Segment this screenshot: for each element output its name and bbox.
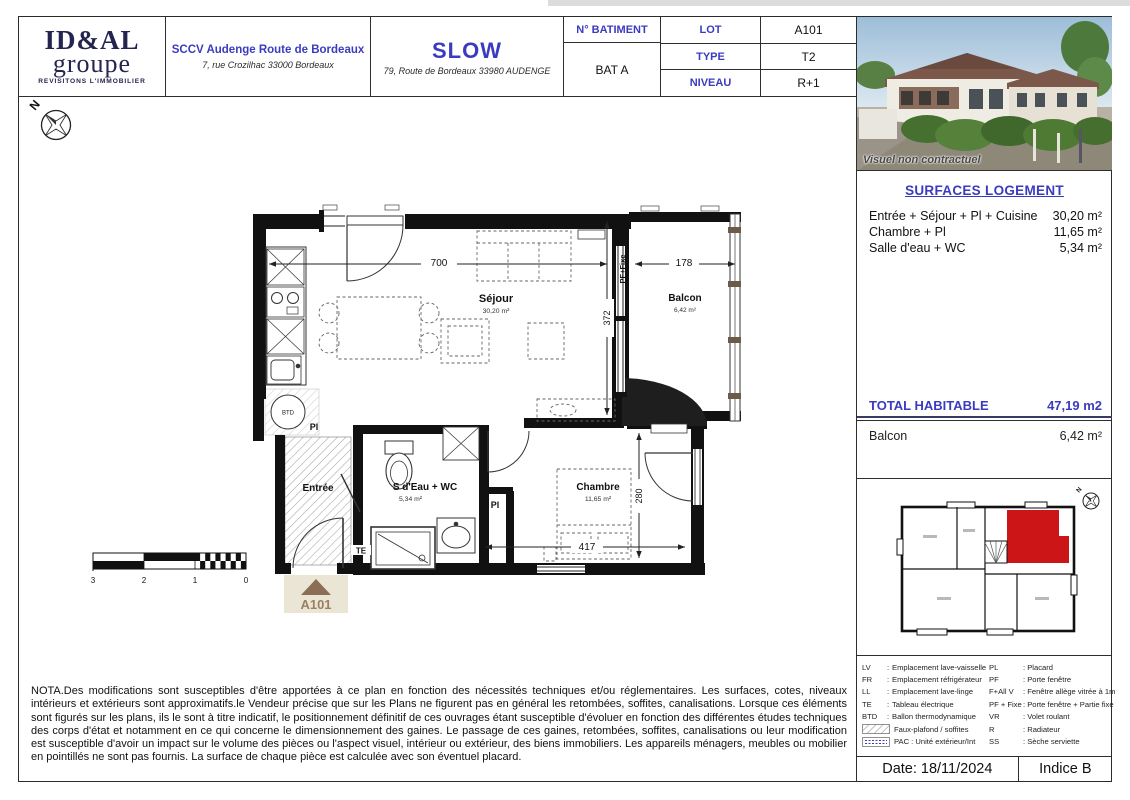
floor-plan-drawing: N [19, 96, 856, 686]
surface-row: Entrée + Séjour + Pl + Cuisine 30,20 m² [869, 208, 1102, 224]
entree-hatched-floor [285, 437, 351, 565]
svg-text:178: 178 [676, 258, 693, 269]
surface-row: Salle d'eau + WC 5,34 m² [869, 240, 1102, 256]
legend-separator: : [884, 700, 892, 709]
legend-text: Emplacement réfrigérateur [892, 675, 982, 684]
legend-row: PAC : Unité extérieur/Int [862, 735, 984, 747]
legend-abbr: PF [989, 675, 1023, 684]
project-cell: SLOW 79, Route de Bordeaux 33980 AUDENGE [371, 17, 564, 96]
legend-text: : Placard [1023, 663, 1053, 672]
placard-label-1: Pl [310, 422, 319, 432]
lot-entrance-marker: A101 [284, 575, 348, 613]
type-value: T2 [761, 44, 856, 71]
balcon-section: Balcon 6,42 m² [857, 421, 1112, 479]
chambre-doors [488, 431, 702, 505]
key-plan-illustration: N [857, 479, 1112, 656]
pac-unit-icon [862, 737, 890, 747]
legend-abbr: SS [989, 737, 1023, 746]
key-plan-section: N [857, 479, 1112, 656]
legend-row: R: Radiateur [989, 723, 1115, 735]
legend-abbr: BTD [862, 712, 884, 721]
svg-text:417: 417 [579, 542, 596, 553]
radiator-chambre [651, 424, 687, 433]
indice-value: Indice B [1019, 757, 1112, 781]
room-label-entree: Entrée [302, 483, 334, 494]
legend-row: LL:Emplacement lave-linge [862, 686, 984, 698]
keyplan-compass-icon: N [1075, 486, 1099, 509]
legend-text: : Volet roulant [1023, 712, 1069, 721]
lot-type-niveau-labels: LOT TYPE NIVEAU [661, 17, 761, 96]
surfaces-title: SURFACES LOGEMENT [857, 183, 1112, 198]
placard-label-2: Pl [491, 500, 500, 510]
legend-text: : Fenêtre allège vitrée à 1m [1023, 687, 1115, 696]
svg-text:280: 280 [634, 488, 644, 503]
legend-row: TE:Tableau électrique [862, 698, 984, 710]
document-frame: ID&AL groupe REVISITONS L'IMMOBILIER SCC… [18, 16, 1112, 782]
legend-abbr: LL [862, 687, 884, 696]
legend-text: Emplacement lave-linge [892, 687, 973, 696]
legend-abbr: PF + Fixe [989, 700, 1023, 709]
logo-tagline: REVISITONS L'IMMOBILIER [38, 78, 146, 85]
legend-text: PAC : Unité extérieur/Int [894, 737, 975, 746]
legend-row: LV:Emplacement lave-vaisselle [862, 661, 984, 673]
room-area-balcon: 6,42 m² [674, 307, 697, 314]
scale-bar: 3 2 1 0 [91, 553, 249, 585]
floor-plan-document: ID&AL groupe REVISITONS L'IMMOBILIER SCC… [0, 0, 1130, 800]
project-address: 79, Route de Bordeaux 33980 AUDENGE [384, 66, 551, 76]
niveau-label: NIVEAU [661, 70, 760, 96]
surfaces-table: Entrée + Séjour + Pl + Cuisine 30,20 m² … [869, 208, 1102, 256]
lot-value: A101 [761, 17, 856, 44]
te-label: TE [356, 547, 367, 556]
legend-text: : Porte fenêtre [1023, 675, 1071, 684]
svg-text:0: 0 [244, 576, 249, 585]
room-label-sejour: Séjour [479, 293, 514, 305]
legend-row: F+All V: Fenêtre allège vitrée à 1m [989, 686, 1115, 698]
total-label: TOTAL HABITABLE [869, 398, 989, 413]
legend-text: Emplacement lave-vaisselle [892, 663, 986, 672]
legend-text: Ballon thermodynamique [892, 712, 976, 721]
room-label-balcon: Balcon [668, 293, 701, 304]
building-render-illustration [857, 17, 1112, 171]
surfaces-section: SURFACES LOGEMENT Entrée + Séjour + Pl +… [857, 171, 1112, 421]
faux-plafond-hatch-icon [862, 724, 890, 734]
legend-left-column: LV:Emplacement lave-vaisselle FR:Emplace… [857, 656, 984, 756]
lot-type-niveau-values: A101 T2 R+1 [761, 17, 856, 96]
svg-text:N: N [1075, 486, 1084, 494]
legend-row: PL: Placard [989, 661, 1115, 673]
legend-text: : Porte fenêtre + Partie fixe [1023, 700, 1114, 709]
kitchen-counter [266, 247, 306, 385]
surface-label: Chambre + Pl [869, 224, 946, 240]
batiment-value: BAT A [564, 43, 660, 96]
legend-abbr: FR [862, 675, 884, 684]
date-indice-row: Date: 18/11/2024 Indice B [857, 757, 1112, 781]
right-sidebar: Visuel non contractuel SURFACES LOGEMENT… [856, 17, 1111, 781]
legend-abbr: LV [862, 663, 884, 672]
photo-caption: Visuel non contractuel [863, 154, 981, 166]
legend-row: FR:Emplacement réfrigérateur [862, 673, 984, 685]
legend-separator: : [884, 675, 892, 684]
btd-ballon: BTD [271, 395, 305, 429]
batiment-column: N° BATIMENT BAT A [564, 17, 661, 96]
room-area-sdeau: 5,34 m² [399, 496, 423, 503]
north-label: N [27, 97, 43, 113]
legend-abbr: R [989, 725, 1023, 734]
balcon-label: Balcon [869, 429, 907, 443]
surface-label: Salle d'eau + WC [869, 240, 966, 256]
sejour-entry-door [345, 212, 405, 281]
balcon-value: 6,42 m² [1060, 429, 1102, 443]
surface-value: 30,20 m² [1053, 208, 1102, 224]
company-logo: ID&AL groupe REVISITONS L'IMMOBILIER [19, 17, 166, 96]
surface-value: 5,34 m² [1060, 240, 1102, 256]
svg-text:700: 700 [431, 258, 448, 269]
svg-text:2: 2 [142, 576, 147, 585]
chambre-bottom-window [537, 565, 585, 573]
legend-row: BTD:Ballon thermodynamique [862, 711, 984, 723]
balcon-row: Balcon 6,42 m² [857, 421, 1112, 443]
balcony-door-swing [622, 378, 707, 426]
lot-number-label: A101 [300, 597, 331, 612]
legend-text: Faux-plafond / soffites [894, 725, 969, 734]
legend-row: PF: Porte fenêtre [989, 673, 1115, 685]
legend-text: : Sèche serviette [1023, 737, 1080, 746]
legend-row: Faux-plafond / soffites [862, 723, 984, 735]
developer-name: SCCV Audenge Route de Bordeaux [172, 44, 365, 56]
surface-label: Entrée + Séjour + Pl + Cuisine [869, 208, 1038, 224]
nota-disclaimer: NOTA.Des modifications sont susceptibles… [31, 685, 847, 765]
room-area-chambre: 11,65 m² [585, 496, 612, 503]
legend-separator: : [884, 687, 892, 696]
stairs-symbol [985, 541, 1007, 563]
legend-row: VR: Volet roulant [989, 711, 1115, 723]
surface-row: Chambre + Pl 11,65 m² [869, 224, 1102, 240]
legend-row: SS: Sèche serviette [989, 735, 1115, 747]
legend-separator: : [884, 712, 892, 721]
lot-label: LOT [661, 17, 760, 44]
logo-subtext: groupe [53, 52, 131, 75]
svg-text:1: 1 [193, 576, 198, 585]
svg-text:372: 372 [602, 310, 612, 325]
total-habitable-row: TOTAL HABITABLE 47,19 m2 [857, 398, 1112, 418]
building-photo: Visuel non contractuel [857, 17, 1112, 171]
title-block: ID&AL groupe REVISITONS L'IMMOBILIER SCC… [19, 17, 856, 97]
type-label: TYPE [661, 44, 760, 71]
legend-abbr: VR [989, 712, 1023, 721]
legend-abbr: F+All V [989, 687, 1023, 696]
pf-fixe-label: PF+Fixe [618, 255, 627, 284]
legend-text: : Radiateur [1023, 725, 1060, 734]
project-name: SLOW [432, 38, 502, 64]
room-label-chambre: Chambre [576, 482, 620, 493]
svg-text:3: 3 [91, 576, 96, 585]
legend-separator: : [884, 663, 892, 672]
scan-edge-strip [548, 0, 1130, 6]
batiment-label: N° BATIMENT [564, 17, 660, 43]
niveau-value: R+1 [761, 70, 856, 96]
legend-abbr: TE [862, 700, 884, 709]
room-label-sdeau: S d'Eau + WC [393, 482, 457, 493]
north-compass-icon: N [27, 97, 71, 139]
legend-text: Tableau électrique [892, 700, 954, 709]
surface-value: 11,65 m² [1054, 224, 1102, 240]
room-area-sejour: 30,20 m² [483, 308, 511, 315]
date-value: Date: 18/11/2024 [857, 757, 1019, 781]
total-value: 47,19 m2 [1047, 398, 1102, 413]
legend-row: PF + Fixe: Porte fenêtre + Partie fixe [989, 698, 1115, 710]
developer-cell: SCCV Audenge Route de Bordeaux 7, rue Cr… [166, 17, 371, 96]
legend-section: LV:Emplacement lave-vaisselle FR:Emplace… [857, 656, 1112, 757]
legend-right-column: PL: Placard PF: Porte fenêtre F+All V: F… [984, 656, 1115, 756]
developer-address: 7, rue Crozilhac 33000 Bordeaux [202, 60, 334, 70]
legend-abbr: PL [989, 663, 1023, 672]
radiator-sejour [578, 230, 605, 239]
furniture-dashed [319, 231, 631, 561]
svg-text:BTD: BTD [282, 411, 295, 417]
